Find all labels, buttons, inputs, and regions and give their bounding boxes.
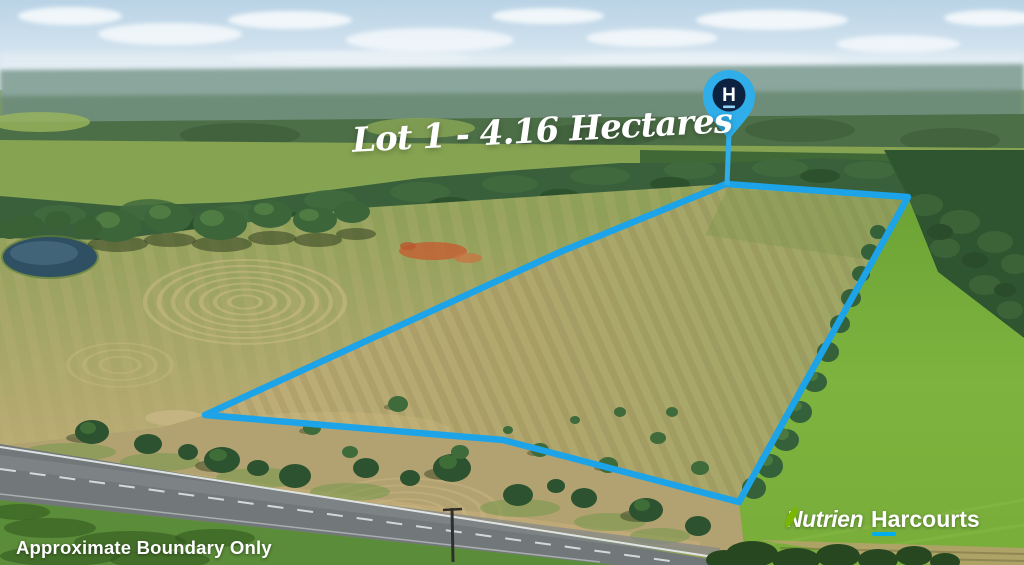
boundary-disclaimer: Approximate Boundary Only (16, 537, 272, 559)
brand-harcourts: Harcourts (871, 506, 980, 532)
dam-pond (1, 235, 99, 279)
harcourts-underline (872, 532, 896, 536)
listing-photo: H Lot 1 - 4.16 Hectares Approximate Boun… (0, 0, 1024, 565)
brand-logo: Nutrien Harcourts (786, 506, 980, 533)
landscape-illustration: H (0, 0, 1024, 565)
brand-nutrien: Nutrien (786, 506, 863, 532)
